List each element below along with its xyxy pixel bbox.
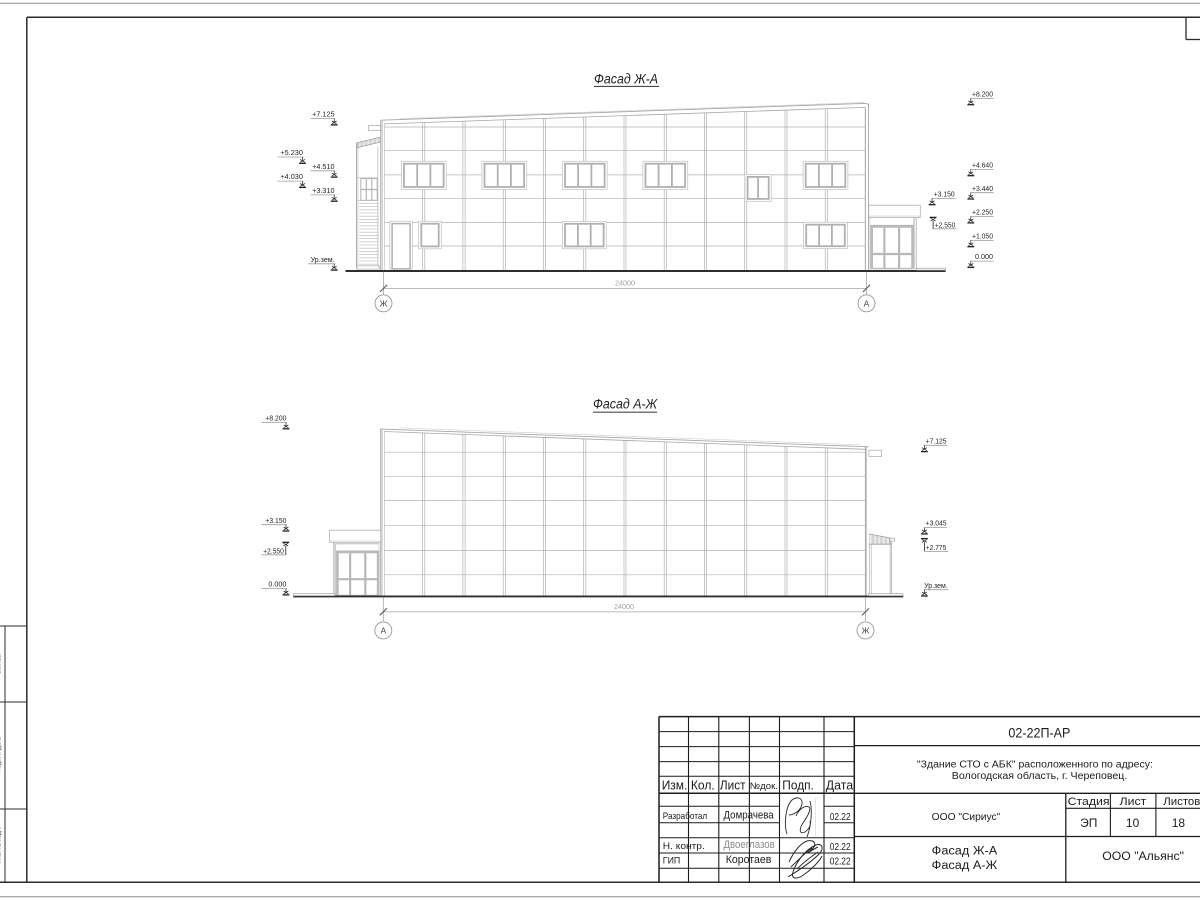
svg-text:№док.: №док. bbox=[750, 781, 778, 792]
svg-text:+1.050: +1.050 bbox=[972, 234, 993, 241]
svg-text:+4.030: +4.030 bbox=[280, 174, 303, 181]
svg-text:24000: 24000 bbox=[615, 281, 635, 288]
svg-text:Ур.зем.: Ур.зем. bbox=[924, 583, 948, 590]
svg-text:Н. контр.: Н. контр. bbox=[663, 841, 705, 852]
svg-text:+2.775: +2.775 bbox=[926, 545, 947, 552]
svg-text:Ж: Ж bbox=[380, 298, 388, 308]
svg-text:Ур.зем.: Ур.зем. bbox=[311, 257, 335, 264]
svg-text:Домрачева: Домрачева bbox=[724, 810, 775, 822]
svg-text:+3.150: +3.150 bbox=[934, 192, 955, 199]
svg-text:02.22: 02.22 bbox=[830, 842, 851, 853]
svg-text:Разработал: Разработал bbox=[663, 811, 707, 822]
svg-text:ООО "Альянс": ООО "Альянс" bbox=[1102, 851, 1184, 863]
svg-text:02.22: 02.22 bbox=[830, 856, 851, 867]
svg-text:+2.550: +2.550 bbox=[935, 223, 956, 230]
svg-text:Вологодская область, г. Черепо: Вологодская область, г. Череповец. bbox=[952, 770, 1127, 782]
svg-text:ООО "Сириус": ООО "Сириус" bbox=[932, 812, 1001, 823]
svg-text:18: 18 bbox=[1172, 816, 1186, 830]
svg-text:Листов: Листов bbox=[1163, 796, 1200, 808]
svg-text:Лист: Лист bbox=[720, 777, 746, 792]
svg-text:+8.200: +8.200 bbox=[265, 416, 286, 423]
svg-text:02-22П-АР: 02-22П-АР bbox=[1008, 725, 1070, 740]
svg-text:+2.250: +2.250 bbox=[972, 210, 993, 217]
svg-text:Подп. и дата: Подп. и дата bbox=[0, 737, 3, 773]
svg-text:+3.310: +3.310 bbox=[312, 188, 335, 195]
svg-text:+3.045: +3.045 bbox=[926, 521, 947, 528]
svg-text:+8.200: +8.200 bbox=[972, 92, 993, 99]
svg-text:Фасад Ж-А: Фасад Ж-А bbox=[594, 71, 658, 86]
svg-text:Инв. № подл.: Инв. № подл. bbox=[0, 826, 3, 864]
svg-text:Лист: Лист bbox=[1120, 796, 1147, 808]
svg-text:Фасад А-Ж: Фасад А-Ж bbox=[932, 860, 998, 872]
svg-text:Фасад Ж-А: Фасад Ж-А bbox=[932, 845, 998, 857]
svg-text:02.22: 02.22 bbox=[830, 812, 851, 823]
svg-text:Дата: Дата bbox=[826, 777, 854, 792]
svg-text:Изм.: Изм. bbox=[662, 777, 688, 792]
svg-text:"Здание СТО с АБК" расположенн: "Здание СТО с АБК" расположенного по адр… bbox=[917, 760, 1153, 771]
svg-text:А: А bbox=[864, 298, 870, 308]
svg-text:+3.440: +3.440 bbox=[972, 186, 993, 193]
svg-text:Фасад А-Ж: Фасад А-Ж bbox=[593, 397, 658, 412]
svg-text:+2.550: +2.550 bbox=[263, 548, 284, 555]
svg-text:Коротаев: Коротаев bbox=[726, 854, 772, 866]
svg-text:+3.150: +3.150 bbox=[265, 518, 286, 525]
svg-text:10: 10 bbox=[1126, 816, 1140, 830]
svg-text:ЭП: ЭП bbox=[1080, 816, 1097, 830]
svg-text:ГИП: ГИП bbox=[663, 856, 681, 867]
svg-text:+4.640: +4.640 bbox=[972, 163, 993, 170]
svg-text:Ж: Ж bbox=[862, 625, 870, 635]
svg-text:Соглас.: Соглас. bbox=[0, 653, 3, 675]
svg-text:Двоеглазов: Двоеглазов bbox=[724, 839, 775, 851]
svg-text:+5.230: +5.230 bbox=[280, 150, 303, 157]
svg-text:+4.510: +4.510 bbox=[312, 164, 335, 171]
svg-text:Подп.: Подп. bbox=[782, 777, 814, 792]
svg-text:0.000: 0.000 bbox=[268, 582, 286, 589]
svg-text:+7.125: +7.125 bbox=[312, 112, 335, 119]
svg-text:24000: 24000 bbox=[614, 604, 634, 611]
svg-text:+7.125: +7.125 bbox=[926, 438, 947, 445]
svg-text:Стадия: Стадия bbox=[1068, 796, 1110, 808]
svg-text:А: А bbox=[380, 625, 386, 635]
svg-text:0.000: 0.000 bbox=[975, 254, 993, 261]
svg-text:Кол.: Кол. bbox=[691, 777, 715, 792]
